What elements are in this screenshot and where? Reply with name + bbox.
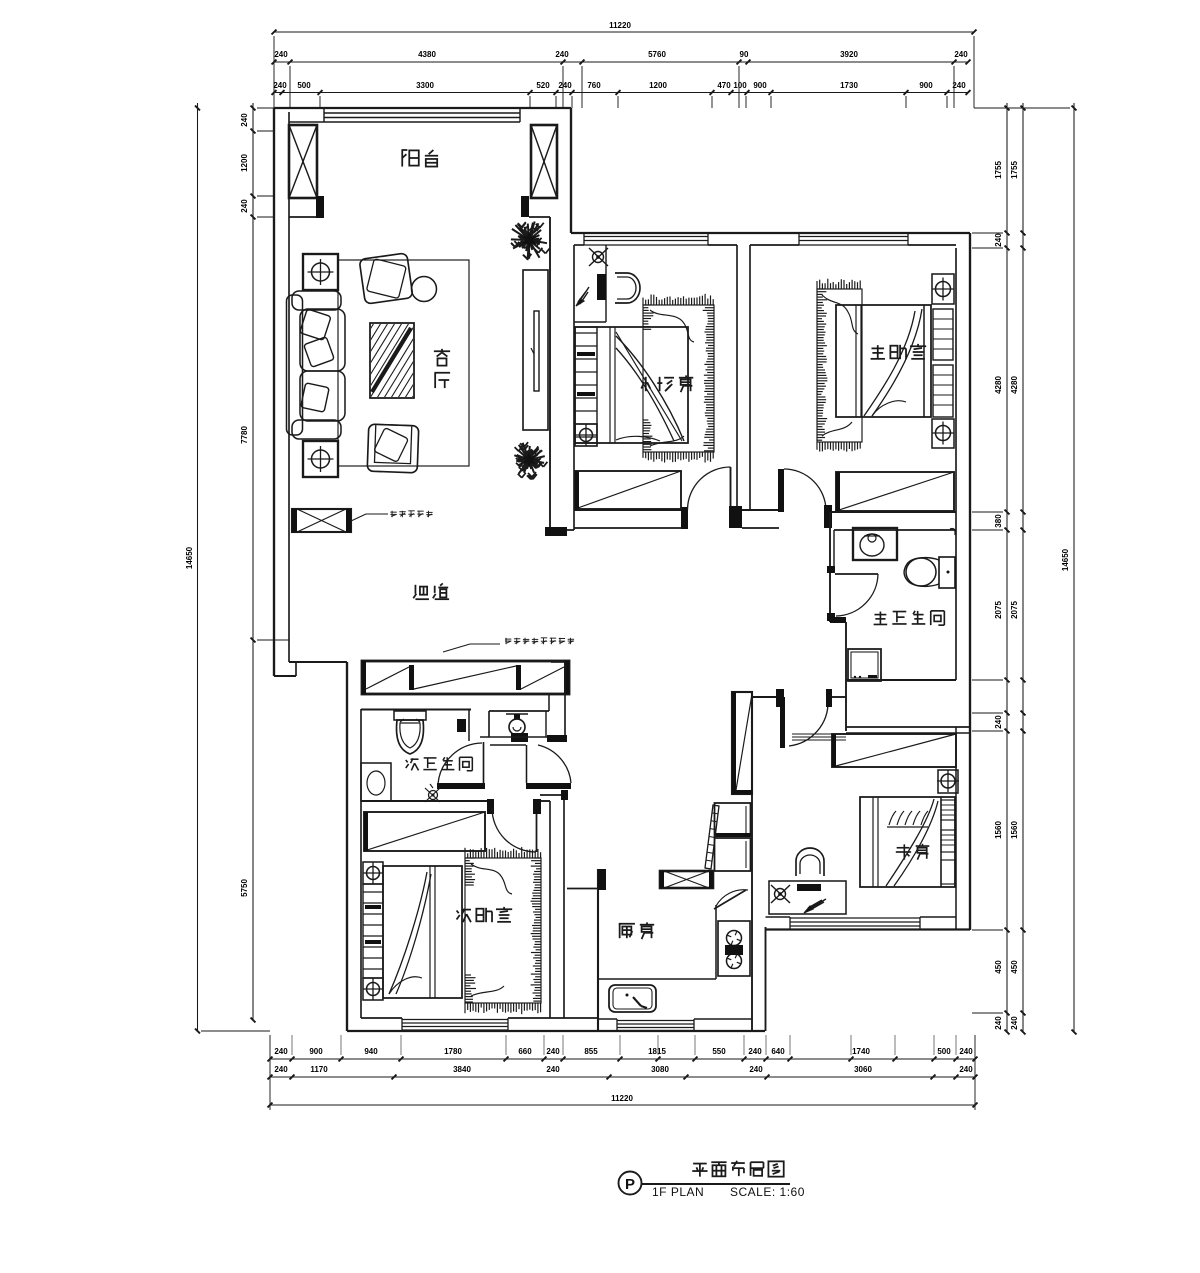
svg-text:240: 240 xyxy=(994,715,1003,729)
svg-text:240: 240 xyxy=(273,81,287,90)
svg-text:1780: 1780 xyxy=(444,1047,462,1056)
svg-text:450: 450 xyxy=(1010,960,1019,974)
svg-text:1755: 1755 xyxy=(994,161,1003,179)
svg-text:4380: 4380 xyxy=(418,50,436,59)
svg-text:3060: 3060 xyxy=(854,1065,872,1074)
svg-text:520: 520 xyxy=(536,81,550,90)
svg-text:5750: 5750 xyxy=(240,879,249,897)
svg-text:240: 240 xyxy=(274,50,288,59)
svg-text:1200: 1200 xyxy=(649,81,667,90)
svg-text:855: 855 xyxy=(584,1047,598,1056)
svg-text:640: 640 xyxy=(771,1047,785,1056)
svg-text:450: 450 xyxy=(994,960,1003,974)
svg-text:3080: 3080 xyxy=(651,1065,669,1074)
svg-text:1730: 1730 xyxy=(840,81,858,90)
svg-text:240: 240 xyxy=(240,113,249,127)
svg-text:240: 240 xyxy=(959,1065,973,1074)
svg-text:240: 240 xyxy=(274,1047,288,1056)
svg-text:11220: 11220 xyxy=(611,1094,633,1103)
svg-text:4280: 4280 xyxy=(1010,376,1019,394)
svg-text:7780: 7780 xyxy=(240,426,249,444)
svg-text:240: 240 xyxy=(546,1065,560,1074)
svg-text:660: 660 xyxy=(518,1047,532,1056)
svg-text:240: 240 xyxy=(546,1047,560,1056)
svg-text:240: 240 xyxy=(959,1047,973,1056)
svg-text:240: 240 xyxy=(994,1016,1003,1030)
svg-text:14650: 14650 xyxy=(185,546,194,569)
svg-text:240: 240 xyxy=(954,50,968,59)
svg-text:SCALE: 1:60: SCALE: 1:60 xyxy=(730,1185,805,1199)
svg-text:1740: 1740 xyxy=(852,1047,870,1056)
svg-text:11220: 11220 xyxy=(609,21,631,30)
svg-text:550: 550 xyxy=(712,1047,726,1056)
svg-text:240: 240 xyxy=(1010,1016,1019,1030)
svg-text:1170: 1170 xyxy=(310,1065,328,1074)
svg-text:240: 240 xyxy=(749,1065,763,1074)
svg-text:1200: 1200 xyxy=(240,154,249,172)
svg-text:1560: 1560 xyxy=(994,821,1003,839)
svg-text:90: 90 xyxy=(740,50,749,59)
svg-text:3840: 3840 xyxy=(453,1065,471,1074)
svg-text:240: 240 xyxy=(558,81,572,90)
svg-text:940: 940 xyxy=(364,1047,378,1056)
svg-text:P: P xyxy=(625,1176,635,1193)
svg-text:900: 900 xyxy=(753,81,767,90)
svg-text:14650: 14650 xyxy=(1061,548,1070,571)
svg-text:760: 760 xyxy=(587,81,601,90)
svg-text:900: 900 xyxy=(309,1047,323,1056)
svg-text:470: 470 xyxy=(717,81,731,90)
svg-text:1815: 1815 xyxy=(648,1047,666,1056)
svg-text:900: 900 xyxy=(919,81,933,90)
svg-text:1F PLAN: 1F PLAN xyxy=(652,1185,704,1199)
svg-text:4280: 4280 xyxy=(994,376,1003,394)
svg-text:380: 380 xyxy=(994,514,1003,528)
svg-text:3920: 3920 xyxy=(840,50,858,59)
svg-text:240: 240 xyxy=(748,1047,762,1056)
svg-text:5760: 5760 xyxy=(648,50,666,59)
svg-text:240: 240 xyxy=(240,199,249,213)
svg-text:500: 500 xyxy=(297,81,311,90)
svg-text:100: 100 xyxy=(733,81,747,90)
svg-text:1755: 1755 xyxy=(1010,161,1019,179)
svg-text:2075: 2075 xyxy=(994,601,1003,619)
svg-text:240: 240 xyxy=(274,1065,288,1074)
svg-text:240: 240 xyxy=(994,233,1003,247)
svg-text:500: 500 xyxy=(937,1047,951,1056)
svg-text:1560: 1560 xyxy=(1010,821,1019,839)
svg-text:240: 240 xyxy=(555,50,569,59)
svg-text:2075: 2075 xyxy=(1010,601,1019,619)
svg-text:3300: 3300 xyxy=(416,81,434,90)
